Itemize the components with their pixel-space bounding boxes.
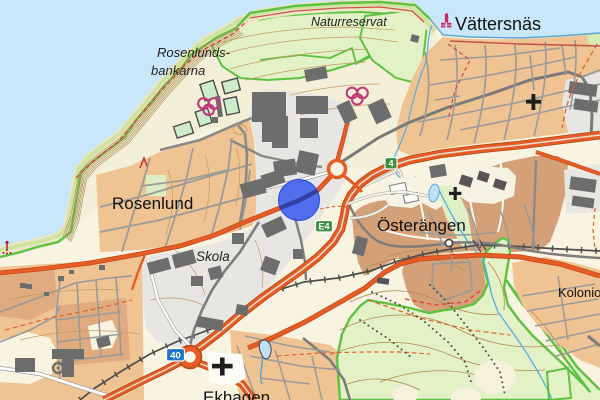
svg-text:Rosenlunds-: Rosenlunds- (157, 45, 231, 60)
svg-text:Koloniområde: Koloniområde (558, 285, 600, 300)
svg-text:E4: E4 (318, 222, 329, 232)
svg-text:40: 40 (170, 350, 181, 361)
svg-text:Vättersnäs: Vättersnäs (455, 14, 541, 34)
svg-text:bankarna: bankarna (151, 63, 205, 78)
svg-text:Naturreservat: Naturreservat (311, 15, 387, 29)
svg-text:Rosenlund: Rosenlund (112, 194, 193, 213)
svg-text:Österängen: Österängen (377, 216, 466, 235)
svg-text:4: 4 (388, 159, 393, 169)
svg-text:Ekhagen: Ekhagen (203, 388, 270, 400)
svg-text:Skola: Skola (196, 249, 230, 264)
